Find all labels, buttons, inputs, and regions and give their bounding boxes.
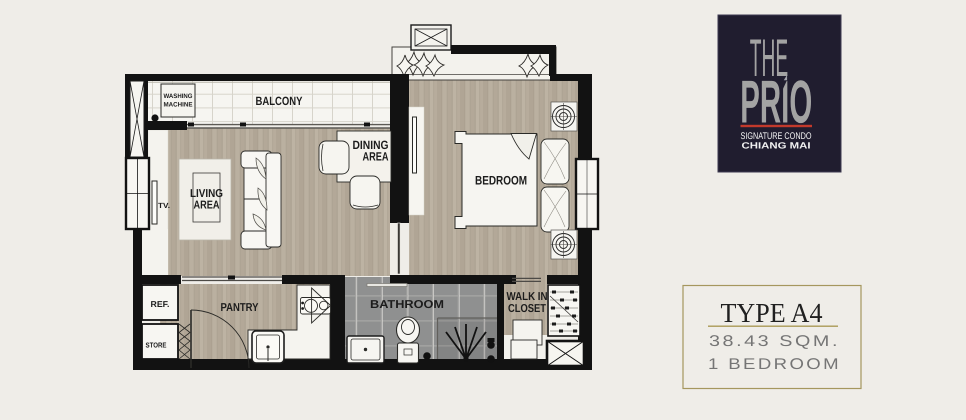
svg-text:BATHROOM: BATHROOM <box>370 299 444 311</box>
svg-text:38.43 SQM.: 38.43 SQM. <box>709 333 840 350</box>
svg-text:STORE: STORE <box>146 341 167 350</box>
svg-text:PANTRY: PANTRY <box>221 302 259 314</box>
svg-text:AREA: AREA <box>363 150 389 164</box>
svg-text:MACHINE: MACHINE <box>164 102 194 109</box>
svg-text:WASHING: WASHING <box>164 93 193 100</box>
svg-text:CHIANG MAI: CHIANG MAI <box>742 141 811 151</box>
svg-text:REF.: REF. <box>151 299 170 309</box>
svg-text:BALCONY: BALCONY <box>256 94 303 108</box>
svg-text:WALK IN: WALK IN <box>507 291 548 303</box>
svg-text:1 BEDROOM: 1 BEDROOM <box>708 356 841 373</box>
svg-text:TV.: TV. <box>158 201 170 210</box>
svg-text:CLOSET: CLOSET <box>508 303 546 315</box>
svg-text:BEDROOM: BEDROOM <box>475 174 527 188</box>
svg-text:LIVING: LIVING <box>190 188 223 200</box>
svg-text:TYPE A4: TYPE A4 <box>721 297 823 328</box>
svg-text:AREA: AREA <box>194 200 220 212</box>
